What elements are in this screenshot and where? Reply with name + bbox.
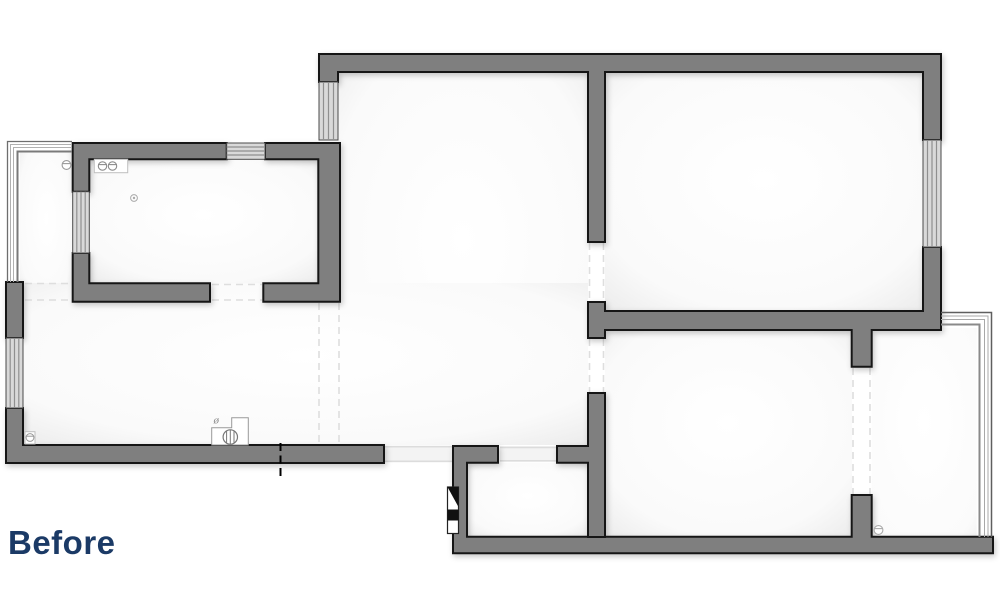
window-left-outer [6, 338, 23, 408]
entry-door-icon [448, 487, 459, 534]
threshold-entry [384, 446, 453, 463]
plan-stage-label: Before [8, 524, 116, 562]
floor-bedroom-bottom-right [605, 330, 852, 537]
window-living-left [319, 82, 338, 140]
floor-kitchen [89, 159, 318, 283]
diameter-mark: ø [213, 415, 220, 427]
floor-plan-canvas: ø Before [0, 0, 1000, 613]
cooktop-icon [94, 159, 127, 172]
floor-lower-left [23, 283, 588, 445]
floor-bedroom-top-right [605, 72, 923, 311]
window-kitchen-left [73, 192, 90, 253]
window-right-wall [923, 140, 941, 247]
window-kitchen-top [227, 143, 265, 159]
service-circle-icon [62, 161, 71, 170]
floors [20, 72, 977, 537]
wall-left-pier [6, 282, 23, 338]
threshold-hall-door [500, 446, 557, 462]
floor-left-strip [20, 151, 73, 302]
floor-hall [467, 463, 588, 537]
floor-balcony-right [872, 328, 977, 537]
radiator-valve-icon [25, 432, 35, 444]
floor-plan: ø [0, 0, 1000, 613]
valve-icon [874, 526, 883, 535]
